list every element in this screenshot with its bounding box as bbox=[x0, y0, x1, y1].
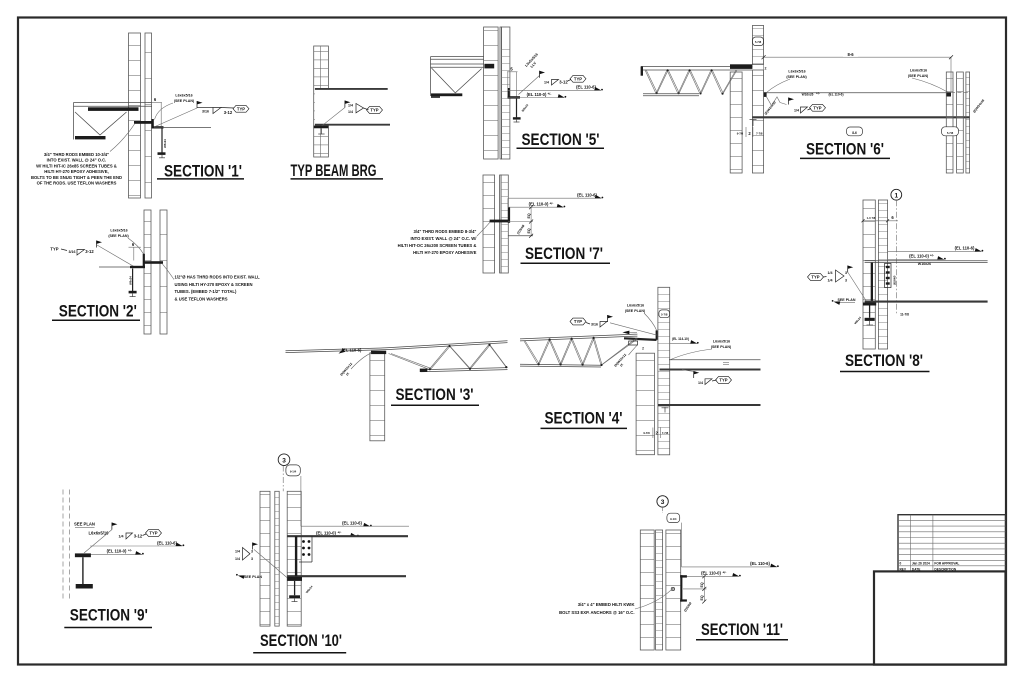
svg-text:(6)3/4Ø: (6)3/4Ø bbox=[892, 275, 896, 285]
svg-text:9-1/4: 9-1/4 bbox=[670, 517, 677, 521]
svg-text:(EL 114-10): (EL 114-10) bbox=[672, 337, 689, 341]
svg-text:3/16: 3/16 bbox=[69, 250, 76, 254]
svg-text:(EL 110-6): (EL 110-6) bbox=[577, 193, 597, 198]
svg-text:5-7/8: 5-7/8 bbox=[661, 313, 668, 317]
svg-text:TYP: TYP bbox=[370, 108, 378, 113]
svg-text:9-1/4: 9-1/4 bbox=[290, 469, 297, 473]
svg-text:0: 0 bbox=[900, 562, 902, 566]
svg-text:TYP: TYP bbox=[811, 275, 819, 280]
svg-text:3/16: 3/16 bbox=[591, 323, 598, 327]
svg-text:3: 3 bbox=[845, 271, 847, 275]
svg-text:L6x6x5/16: L6x6x5/16 bbox=[110, 229, 127, 233]
svg-text:3: 3 bbox=[845, 279, 847, 283]
svg-text:1-0 7/8: 1-0 7/8 bbox=[867, 216, 876, 220]
svg-text:L6x6x5/16: L6x6x5/16 bbox=[627, 304, 644, 308]
svg-text:8-6: 8-6 bbox=[847, 52, 854, 57]
svg-text:TUBES. (EMBED 7-1/2" TOTAL): TUBES. (EMBED 7-1/2" TOTAL) bbox=[175, 289, 237, 294]
svg-text:& USE TEFLON WASHERS: & USE TEFLON WASHERS bbox=[175, 296, 228, 301]
svg-text:1/4: 1/4 bbox=[698, 381, 703, 385]
svg-text:(EL 110-0): (EL 110-0) bbox=[909, 254, 929, 259]
svg-text:11-7/8: 11-7/8 bbox=[900, 312, 909, 316]
svg-text:+/-: +/- bbox=[723, 571, 727, 575]
svg-text:5-7/8: 5-7/8 bbox=[947, 131, 954, 135]
svg-text:W/ HILTI HIT-IC 26x85 SCREEN T: W/ HILTI HIT-IC 26x85 SCREEN TUBES & bbox=[36, 163, 117, 168]
svg-text:+/-: +/- bbox=[550, 202, 554, 206]
svg-text:L6x6x5/16: L6x6x5/16 bbox=[788, 70, 805, 74]
svg-text:OF THE RODS. USE TEFLON WASHER: OF THE RODS. USE TEFLON WASHERS bbox=[37, 181, 117, 186]
svg-text:EQ: EQ bbox=[527, 228, 531, 233]
svg-text:1/4: 1/4 bbox=[235, 557, 240, 561]
svg-text:SEE PLAN: SEE PLAN bbox=[244, 575, 262, 579]
svg-text:BOLTS TO BE SNUG TIGHT & PEEN: BOLTS TO BE SNUG TIGHT & PEEN THE END bbox=[31, 175, 122, 180]
svg-text:3/16: 3/16 bbox=[202, 110, 209, 114]
svg-text:TYP: TYP bbox=[574, 76, 582, 81]
svg-text:EQ: EQ bbox=[700, 595, 704, 600]
svg-text:9-7/8: 9-7/8 bbox=[643, 431, 650, 435]
svg-text:(SEE PLAN): (SEE PLAN) bbox=[625, 309, 646, 313]
svg-text:(EL 110-6): (EL 110-6) bbox=[750, 561, 770, 566]
svg-text:2: 2 bbox=[642, 347, 644, 351]
svg-text:1/4: 1/4 bbox=[235, 550, 240, 554]
svg-text:TYP: TYP bbox=[149, 531, 157, 536]
svg-text:3/4" THRD RODS EMBED 8-3/4": 3/4" THRD RODS EMBED 8-3/4" bbox=[414, 229, 477, 234]
svg-text:SECTION '11': SECTION '11' bbox=[701, 621, 783, 639]
svg-text:1/4: 1/4 bbox=[828, 271, 833, 275]
svg-text:1/4: 1/4 bbox=[544, 81, 549, 85]
svg-text:HILTI HIT-OC 26x200 SCREEN TUB: HILTI HIT-OC 26x200 SCREEN TUBES & bbox=[398, 243, 477, 248]
svg-text:1/4: 1/4 bbox=[794, 109, 799, 113]
svg-text:3: 3 bbox=[251, 557, 253, 561]
svg-text:SECTION '10': SECTION '10' bbox=[260, 632, 342, 650]
svg-text:TYP: TYP bbox=[719, 378, 727, 383]
svg-text:USING HILTI HY-270 EPOXY & SCR: USING HILTI HY-270 EPOXY & SCREEN bbox=[175, 282, 253, 287]
svg-text:3-12: 3-12 bbox=[224, 110, 233, 115]
svg-text:BOLT SS3 EXP. ANCHORS @ 16" O.: BOLT SS3 EXP. ANCHORS @ 16" O.C. bbox=[559, 610, 634, 615]
svg-text:(SEE PLAN): (SEE PLAN) bbox=[174, 99, 195, 103]
svg-text:3-12: 3-12 bbox=[559, 80, 568, 85]
svg-text:3: 3 bbox=[251, 550, 253, 554]
svg-text:INTO EXIST. WALL @ 24" O.C. W/: INTO EXIST. WALL @ 24" O.C. W/ bbox=[410, 236, 477, 241]
svg-text:1/2"Ø HAS THRD RODS INTO EXIST: 1/2"Ø HAS THRD RODS INTO EXIST. WALL bbox=[175, 275, 261, 280]
svg-text:5-7/8: 5-7/8 bbox=[755, 40, 762, 44]
svg-text:INTO EXIST. WALL @ 24" O.C.: INTO EXIST. WALL @ 24" O.C. bbox=[47, 158, 107, 163]
svg-text:SECTION '8': SECTION '8' bbox=[845, 352, 923, 370]
svg-text:W16x26: W16x26 bbox=[802, 93, 814, 97]
svg-text:(EL 110-6): (EL 110-6) bbox=[157, 540, 177, 545]
svg-text:1/4: 1/4 bbox=[348, 110, 353, 114]
svg-text:TYP: TYP bbox=[813, 105, 821, 110]
svg-text:+/-: +/- bbox=[930, 254, 934, 258]
svg-text:(EL 110-0): (EL 110-0) bbox=[527, 92, 547, 97]
svg-text:SECTION '5': SECTION '5' bbox=[522, 131, 600, 149]
svg-text:7-7/8: 7-7/8 bbox=[662, 431, 669, 435]
svg-text:EQ: EQ bbox=[527, 213, 531, 218]
svg-text:SECTION '4': SECTION '4' bbox=[545, 410, 623, 428]
svg-text:(SEE PLAN): (SEE PLAN) bbox=[908, 74, 929, 78]
svg-text:(EL 110-0): (EL 110-0) bbox=[701, 571, 721, 576]
svg-text:1/4: 1/4 bbox=[119, 535, 124, 539]
svg-text:L6x6x5/16: L6x6x5/16 bbox=[713, 340, 730, 344]
svg-text:HILTI HY-270 EPOXY ADHESIVE: HILTI HY-270 EPOXY ADHESIVE bbox=[413, 250, 476, 255]
svg-text:TYP: TYP bbox=[50, 247, 58, 252]
svg-text:SECTION '3': SECTION '3' bbox=[396, 386, 474, 404]
svg-text:(EL 110-6): (EL 110-6) bbox=[829, 93, 844, 97]
svg-text:SECTION '1': SECTION '1' bbox=[164, 163, 242, 181]
svg-text:(EL 110-0): (EL 110-0) bbox=[107, 549, 127, 554]
svg-text:7-7/8: 7-7/8 bbox=[756, 132, 763, 136]
svg-text:(EL 110-0): (EL 110-0) bbox=[529, 202, 549, 207]
svg-text:1: 1 bbox=[894, 192, 898, 199]
svg-text:FOR APPROVAL: FOR APPROVAL bbox=[934, 562, 959, 566]
svg-text:3/4" THRD RODS EMBED 10-3/4": 3/4" THRD RODS EMBED 10-3/4" bbox=[44, 152, 109, 157]
svg-text:2: 2 bbox=[765, 67, 767, 71]
svg-text:3: 3 bbox=[282, 457, 286, 464]
svg-text:W8x24: W8x24 bbox=[128, 276, 132, 285]
svg-text:(SEE PLAN): (SEE PLAN) bbox=[108, 234, 129, 238]
svg-text:SEE PLAN: SEE PLAN bbox=[74, 522, 95, 527]
svg-text:(EL 110-6): (EL 110-6) bbox=[955, 246, 975, 251]
svg-text:3-12: 3-12 bbox=[85, 249, 94, 254]
svg-text:SECTION '2': SECTION '2' bbox=[59, 303, 137, 321]
svg-text:TYP: TYP bbox=[237, 106, 245, 111]
svg-text:1/4: 1/4 bbox=[828, 279, 833, 283]
svg-text:9-7/8: 9-7/8 bbox=[737, 132, 744, 136]
svg-text:(EL 110-6): (EL 110-6) bbox=[576, 85, 596, 90]
svg-text:TYP: TYP bbox=[574, 319, 582, 324]
svg-text:3: 3 bbox=[661, 499, 665, 506]
svg-text:8-6: 8-6 bbox=[852, 131, 857, 135]
svg-text:1/4: 1/4 bbox=[348, 104, 353, 108]
svg-text:Jan 26 2024: Jan 26 2024 bbox=[912, 562, 930, 566]
svg-text:(SEE PLAN): (SEE PLAN) bbox=[786, 75, 807, 79]
svg-text:(SEE PLAN): (SEE PLAN) bbox=[711, 345, 732, 349]
svg-text:L6x6x5/16: L6x6x5/16 bbox=[910, 69, 927, 73]
svg-text:+/-: +/- bbox=[128, 549, 132, 553]
svg-text:SEE PLAN: SEE PLAN bbox=[838, 298, 856, 302]
svg-text:+/-: +/- bbox=[338, 531, 342, 535]
svg-text:3/4" x 4" EMBED HILTI KWIK: 3/4" x 4" EMBED HILTI KWIK bbox=[578, 602, 635, 607]
svg-text:+/-: +/- bbox=[816, 92, 820, 96]
svg-text:+/-: +/- bbox=[548, 92, 552, 96]
svg-text:SECTION '7': SECTION '7' bbox=[525, 245, 603, 263]
svg-text:(EL 110-0): (EL 110-0) bbox=[316, 531, 336, 536]
svg-text:L6x6x5/16: L6x6x5/16 bbox=[175, 94, 192, 98]
svg-text:SECTION '6': SECTION '6' bbox=[806, 141, 884, 159]
svg-text:W8x24: W8x24 bbox=[163, 139, 167, 148]
svg-text:3-12: 3-12 bbox=[134, 534, 143, 539]
svg-text:TYP BEAM BRG: TYP BEAM BRG bbox=[291, 162, 377, 180]
svg-text:SECTION '9': SECTION '9' bbox=[70, 607, 148, 625]
svg-text:(EL 110-6): (EL 110-6) bbox=[342, 520, 362, 525]
svg-text:EQ: EQ bbox=[700, 582, 704, 587]
svg-text:HILTI HY-270 EPOXY ADHESIVE,: HILTI HY-270 EPOXY ADHESIVE, bbox=[44, 169, 108, 174]
